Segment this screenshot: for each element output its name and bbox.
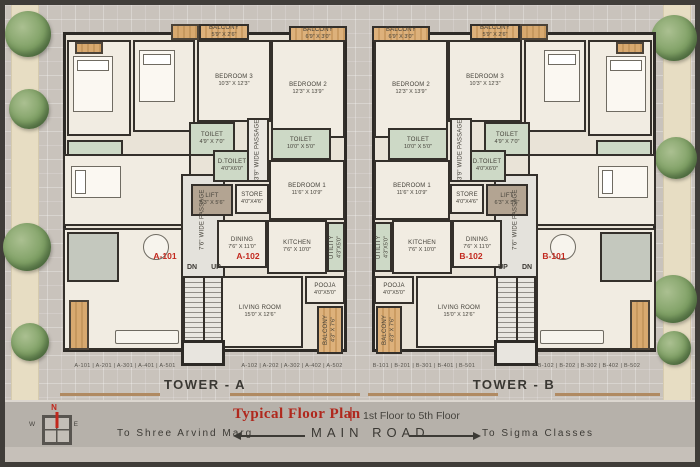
room-dims-label: 12'3" X 13'9" bbox=[395, 89, 426, 96]
room-kitchen: KITCHEN7'6" X 10'0" bbox=[267, 220, 327, 274]
room-name-label: BALCONY bbox=[382, 315, 390, 345]
room-name-label: POOJA bbox=[314, 283, 335, 291]
unit-stack-a-right: A-102 | A-202 | A-302 | A-402 | A-502 bbox=[236, 363, 348, 369]
room-name-label: BEDROOM 1 bbox=[288, 183, 326, 191]
room-name-label: BEDROOM 1 bbox=[393, 183, 431, 191]
room-dims-label: 15'0" X 12'6" bbox=[443, 312, 474, 319]
furniture-tan bbox=[75, 42, 103, 54]
furniture-sofa bbox=[540, 330, 604, 344]
room-name-label: POOJA bbox=[383, 283, 404, 291]
furniture-tan bbox=[616, 42, 644, 54]
room-dims-label: 7'6" X 10'0" bbox=[283, 247, 311, 254]
room-name-label: LIVING ROOM bbox=[438, 305, 480, 313]
room-utility: UTILITY4'3"X5'0" bbox=[327, 222, 345, 272]
curb-line bbox=[60, 393, 160, 396]
site-area: BALCONY5'9" X 2'6"BALCONY6'9" X 3'0"BEDR… bbox=[5, 5, 695, 400]
room-dims-label: 4'0"X4'6" bbox=[456, 199, 478, 206]
compass-east: E bbox=[74, 421, 78, 428]
curb-line bbox=[368, 393, 498, 396]
room-balcony_side: BALCONY4'3" X 7'6" bbox=[376, 306, 402, 354]
tree-icon bbox=[655, 137, 697, 179]
furniture-bedh bbox=[71, 166, 121, 198]
stairs-up-label: UP bbox=[492, 262, 514, 273]
room-name-label: TOILET bbox=[496, 132, 518, 140]
room-toilet_wide: TOILET10'0" X 5'0" bbox=[271, 128, 331, 160]
plan-title: Typical Floor Plan bbox=[233, 406, 361, 423]
compass-rose: N S W E bbox=[29, 403, 79, 449]
room-store: STORE4'0"X4'6" bbox=[450, 184, 484, 214]
room-pooja: POOJA4'0"X5'0" bbox=[305, 276, 345, 304]
unit-stack-b-right: B-102 | B-202 | B-302 | B-402 | B-502 bbox=[533, 363, 645, 369]
main-road-label: MAIN ROAD bbox=[311, 425, 430, 440]
furniture-balcony bbox=[69, 300, 89, 350]
room-balcony_mid: BALCONY5'9" X 2'6" bbox=[470, 24, 520, 40]
floor-plan-canvas: BALCONY5'9" X 2'6"BALCONY6'9" X 3'0"BEDR… bbox=[0, 0, 700, 467]
room-name-label: D.TOILET bbox=[218, 159, 247, 167]
room-dims-label: 4'0"X5'0" bbox=[314, 290, 336, 297]
compass-needle-icon bbox=[56, 412, 59, 428]
staircase bbox=[183, 276, 223, 350]
room-name-label: TOILET bbox=[201, 132, 223, 140]
tower-a-label: TOWER - A bbox=[120, 377, 290, 392]
room-name-label: KITCHEN bbox=[283, 240, 311, 248]
furniture-kitchen bbox=[67, 232, 119, 282]
tower-b-label: TOWER - B bbox=[429, 377, 599, 392]
furniture-bedv bbox=[73, 56, 113, 112]
room-name-label: 3'9" WIDE PASSAGE bbox=[254, 120, 262, 181]
room-passage_39: 3'9" WIDE PASSAGE bbox=[247, 118, 269, 182]
furniture-balcony bbox=[171, 24, 199, 40]
tree-icon bbox=[5, 11, 51, 57]
furniture-bedv bbox=[544, 50, 580, 102]
room-name-label: 7'6" WIDE PASSAGE bbox=[199, 190, 207, 251]
curb-line bbox=[230, 393, 360, 396]
room-name-label: D.TOILET bbox=[473, 159, 502, 167]
room-dims-label: 4'0"X6'0" bbox=[221, 166, 243, 173]
bottom-strip bbox=[5, 447, 695, 462]
title-separator: | bbox=[349, 405, 353, 422]
plan-subtitle: 1st Floor to 5th Floor bbox=[363, 410, 460, 422]
room-name-label: TOILET bbox=[407, 137, 429, 145]
room-name-label: BALCONY bbox=[209, 25, 239, 33]
room-store: STORE4'0"X4'6" bbox=[235, 184, 269, 214]
room-dims-label: 12'3" X 13'9" bbox=[292, 89, 323, 96]
tree-icon bbox=[9, 89, 49, 129]
room-passage_76: 7'6" WIDE PASSAGE bbox=[181, 178, 225, 262]
room-living: LIVING ROOM15'0" X 12'6" bbox=[416, 276, 502, 348]
furniture-bedv bbox=[606, 56, 646, 112]
room-dims-label: 4'9" X 7'0" bbox=[200, 139, 225, 146]
tower-b-plan: BALCONY5'9" X 2'6"BALCONY6'9" X 3'0"BEDR… bbox=[368, 24, 660, 356]
room-name-label: BEDROOM 3 bbox=[215, 74, 253, 82]
room-dims-label: 4'3"X5'0" bbox=[336, 236, 343, 258]
room-toilet_wide: TOILET10'0" X 5'0" bbox=[388, 128, 448, 160]
compass-west: W bbox=[29, 421, 35, 428]
room-dims-label: 4'0"X5'0" bbox=[383, 290, 405, 297]
room-dims-label: 4'3"X5'0" bbox=[383, 236, 390, 258]
room-name-label: LIVING ROOM bbox=[239, 305, 281, 313]
room-dims-label: 4'3" X 7'6" bbox=[330, 318, 337, 343]
room-name-label: STORE bbox=[456, 192, 478, 200]
main-road-band: N S W E Typical Floor Plan | 1st Floor t… bbox=[5, 400, 695, 449]
room-name-label: KITCHEN bbox=[408, 240, 436, 248]
room-name-label: BEDROOM 2 bbox=[289, 82, 327, 90]
room-bedroom3: BEDROOM 310'3" X 12'3" bbox=[197, 40, 271, 122]
unit-number-label: A-102 bbox=[225, 250, 271, 262]
arrow-right-icon bbox=[409, 435, 473, 437]
room-name-label: 3'9" WIDE PASSAGE bbox=[457, 120, 465, 181]
room-dims-label: 11'6" X 10'9" bbox=[292, 190, 323, 197]
room-bedroom2: BEDROOM 212'3" X 13'9" bbox=[271, 40, 345, 138]
room-dims-label: 4'3" X 7'6" bbox=[389, 318, 396, 343]
room-name-label: BALCONY bbox=[303, 27, 333, 35]
furniture-bedv bbox=[139, 50, 175, 102]
room-name-label: BALCONY bbox=[323, 315, 331, 345]
room-dims-label: 4'0"X4'6" bbox=[241, 199, 263, 206]
curb-line bbox=[555, 393, 660, 396]
room-dims-label: 10'3" X 12'3" bbox=[469, 81, 500, 88]
furniture-sofa bbox=[115, 330, 179, 344]
room-name-label: UTILITY bbox=[376, 235, 384, 259]
room-balcony_mid: BALCONY5'9" X 2'6" bbox=[199, 24, 249, 40]
room-dims-label: 7'6" X 10'0" bbox=[408, 247, 436, 254]
staircase bbox=[496, 276, 536, 350]
room-dims-label: 10'3" X 12'3" bbox=[218, 81, 249, 88]
room-utility: UTILITY4'3"X5'0" bbox=[374, 222, 392, 272]
furniture-balcony bbox=[630, 300, 650, 350]
room-name-label: 7'6" WIDE PASSAGE bbox=[512, 190, 520, 251]
room-dims-label: 11'6" X 10'9" bbox=[397, 190, 428, 197]
room-name-label: DINING bbox=[231, 237, 253, 245]
room-name-label: STORE bbox=[241, 192, 263, 200]
stairs-down-label: DN bbox=[516, 262, 538, 273]
room-name-label: BALCONY bbox=[480, 25, 510, 33]
room-dims-label: 4'9" X 7'0" bbox=[495, 139, 520, 146]
unit-number-label: B-102 bbox=[448, 250, 494, 262]
room-dims-label: 5'9" X 2'6" bbox=[483, 32, 508, 39]
stairs-down-label: DN bbox=[181, 262, 203, 273]
compass-box bbox=[42, 415, 72, 445]
tree-icon bbox=[3, 223, 51, 271]
room-dims-label: 5'9" X 2'6" bbox=[212, 32, 237, 39]
arrow-left-icon bbox=[241, 435, 305, 437]
stairs-up-label: UP bbox=[205, 262, 227, 273]
furniture-balcony bbox=[520, 24, 548, 40]
room-name-label: UTILITY bbox=[329, 235, 337, 259]
furniture-bedh bbox=[598, 166, 648, 198]
unit-number-label: B-101 bbox=[532, 250, 576, 262]
tree-icon bbox=[657, 331, 691, 365]
stair-landing bbox=[494, 340, 538, 366]
room-dims-label: 15'0" X 12'6" bbox=[244, 312, 275, 319]
room-bedroom3: BEDROOM 310'3" X 12'3" bbox=[448, 40, 522, 122]
tree-icon bbox=[11, 323, 49, 361]
room-name-label: TOILET bbox=[290, 137, 312, 145]
room-balcony_side: BALCONY4'3" X 7'6" bbox=[317, 306, 343, 354]
room-bedroom1: BEDROOM 111'6" X 10'9" bbox=[269, 160, 345, 220]
room-passage_39: 3'9" WIDE PASSAGE bbox=[450, 118, 472, 182]
room-pooja: POOJA4'0"X5'0" bbox=[374, 276, 414, 304]
stair-landing bbox=[181, 340, 225, 366]
furniture-kitchen bbox=[600, 232, 652, 282]
unit-stack-a-left: A-101 | A-201 | A-301 | A-401 | A-501 bbox=[69, 363, 181, 369]
room-kitchen: KITCHEN7'6" X 10'0" bbox=[392, 220, 452, 274]
unit-number-label: A-101 bbox=[143, 250, 187, 262]
room-dims-label: 10'0" X 5'0" bbox=[287, 144, 315, 151]
unit-stack-b-left: B-101 | B-201 | B-301 | B-401 | B-501 bbox=[368, 363, 480, 369]
room-name-label: BEDROOM 2 bbox=[392, 82, 430, 90]
tower-a-plan: BALCONY5'9" X 2'6"BALCONY6'9" X 3'0"BEDR… bbox=[59, 24, 351, 356]
direction-right-label: To Sigma Classes bbox=[482, 428, 594, 439]
room-bedroom2: BEDROOM 212'3" X 13'9" bbox=[374, 40, 448, 138]
room-name-label: BEDROOM 3 bbox=[466, 74, 504, 82]
compass-north: N bbox=[29, 403, 79, 412]
room-bedroom1: BEDROOM 111'6" X 10'9" bbox=[374, 160, 450, 220]
room-name-label: DINING bbox=[466, 237, 488, 245]
room-dims-label: 10'0" X 5'0" bbox=[404, 144, 432, 151]
room-name-label: BALCONY bbox=[386, 27, 416, 35]
room-dims-label: 4'0"X6'0" bbox=[476, 166, 498, 173]
room-living: LIVING ROOM15'0" X 12'6" bbox=[217, 276, 303, 348]
